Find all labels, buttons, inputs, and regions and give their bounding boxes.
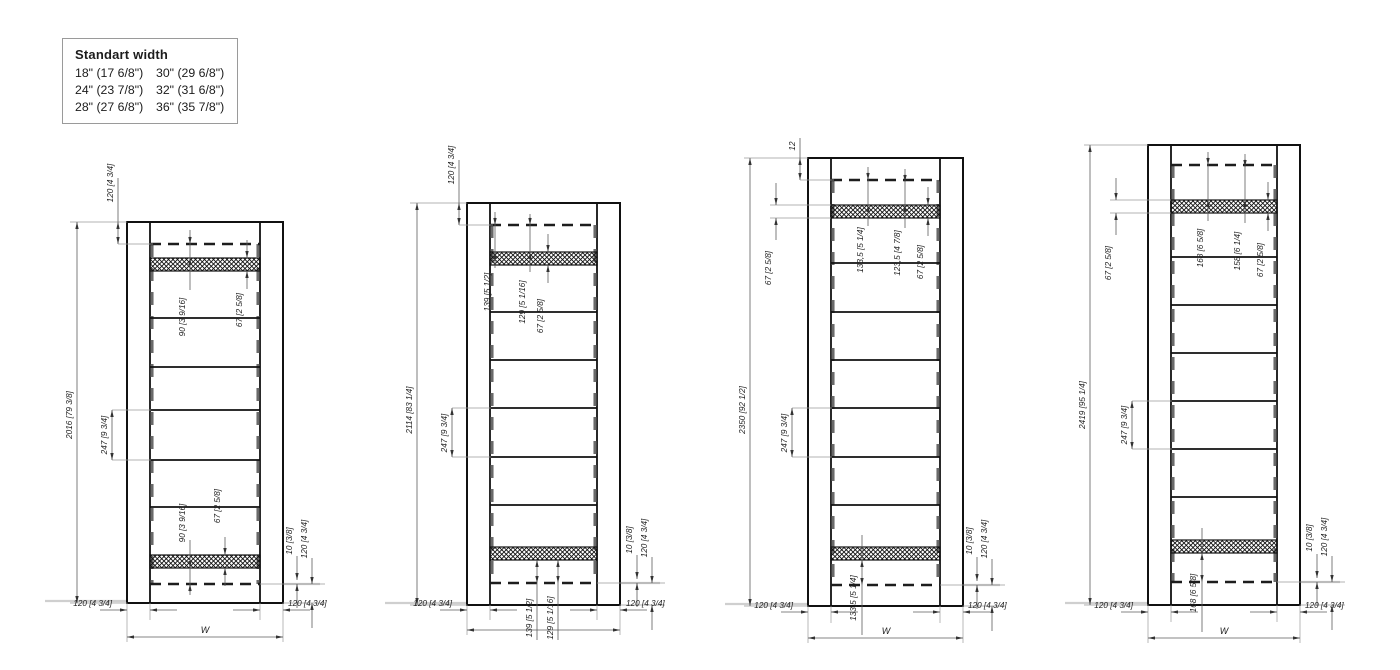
door-elevation-2: 2114 [83 1/4] 120 [4 3/4] 247 [9 3/4] 13… — [360, 120, 700, 670]
door4-slab — [1065, 145, 1340, 605]
door2-dim-bottom-left: 120 [4 3/4] — [413, 599, 452, 608]
door4-dim-right-10: 10 [3/8] — [1305, 524, 1314, 552]
door1-dim-bottom-left: 120 [4 3/4] — [73, 599, 112, 608]
door-elevation-1: 2016 [79 3/8] 120 [4 3/4] 247 [9 3/4] 90… — [20, 120, 360, 670]
legend-item: 30" (29 6/8") — [156, 66, 227, 80]
door2-dim-shelf-gap: 247 [9 3/4] — [440, 413, 449, 453]
door3-louver-top — [831, 205, 940, 218]
door4-dim-height: 2419 [95 1/4] — [1078, 380, 1087, 430]
door2-dim-inner-top-b: 129 [5 1/16] — [518, 280, 527, 324]
legend-item: 24" (23 7/8") — [75, 83, 146, 97]
door3-dim-right-120: 120 [4 3/4] — [980, 519, 989, 558]
door2-louver-bottom — [490, 547, 597, 560]
door2-dim-inner-bottom-b: 129 [5 1/16] — [546, 596, 555, 640]
door4-louver-top — [1171, 200, 1277, 213]
door1-dim-right-10: 10 [3/8] — [285, 527, 294, 555]
door3-slab — [725, 158, 1000, 606]
door3-dim-shelf-gap: 247 [9 3/4] — [780, 413, 789, 453]
door1-dim-top-gap: 120 [4 3/4] — [106, 163, 115, 202]
door2-louver-top — [490, 252, 597, 265]
door-elevation-4: 2419 [95 1/4] 67 [2 5/8] 247 [9 3/4] 168… — [1040, 120, 1380, 670]
door4-dim-shelf-gap: 247 [9 3/4] — [1120, 405, 1129, 445]
door3-dim-inner-top-b: 123,5 [4 7/8] — [893, 230, 902, 276]
door2-dim-right-120: 120 [4 3/4] — [640, 518, 649, 557]
door2-dim-right-10: 10 [3/8] — [625, 526, 634, 554]
door1-dim-inner-bottom-a: 90 [3 9/16] — [178, 503, 187, 542]
legend-item: 28" (27 6/8") — [75, 100, 146, 114]
door1-dim-height: 2016 [79 3/8] — [65, 390, 74, 440]
legend-item: 18" (17 6/8") — [75, 66, 146, 80]
door3-dim-inner-bottom-a: 133,5 [5 1/4] — [849, 575, 858, 621]
door3-dim-height: 2350 [92 1/2] — [738, 385, 747, 435]
door3-dim-inner-top-a: 133,5 [5 1/4] — [856, 227, 865, 273]
legend-grid: 18" (17 6/8") 30" (29 6/8") 24" (23 7/8"… — [75, 66, 227, 114]
door1-louver-bottom — [150, 555, 260, 568]
door1-dim-bottom-right: 120 [4 3/4] — [288, 599, 327, 608]
door2-dim-bottom-right: 120 [4 3/4] — [626, 599, 665, 608]
door3-dim-left-67: 67 [2 5/8] — [764, 250, 773, 285]
door3-dim-top-gap: 12 — [788, 141, 797, 151]
door-elevation-3: 2350 [92 1/2] 12 67 [2 5/8] 247 [9 3/4] … — [700, 120, 1040, 670]
door4-dim-inner-top-b: 158 [6 1/4] — [1233, 231, 1242, 270]
door2-slab — [385, 203, 660, 605]
door4-dim-inner-top-a: 168 [6 5/8] — [1196, 228, 1205, 267]
door3-dim-inner-top-c: 67 [2 5/8] — [916, 244, 925, 279]
door3-dim-right-10: 10 [3/8] — [965, 527, 974, 555]
door1-dim-inner-top-a: 90 [3 9/16] — [178, 297, 187, 336]
door3-dim-width: W — [882, 626, 892, 636]
door3-louver-bottom — [831, 547, 940, 560]
door4-dim-bottom-left: 120 [4 3/4] — [1094, 601, 1133, 610]
door1-dim-shelf-gap: 247 [9 3/4] — [100, 415, 109, 455]
legend-item: 36" (35 7/8") — [156, 100, 227, 114]
door2-dim-inner-bottom-a: 139 [5 1/2] — [525, 598, 534, 637]
door4-dim-bottom-right: 120 [4 3/4] — [1305, 601, 1344, 610]
door4-dim-right-120: 120 [4 3/4] — [1320, 517, 1329, 556]
standard-width-legend: Standart width 18" (17 6/8") 30" (29 6/8… — [62, 38, 238, 124]
door1-dim-inner-top-c: 67 [2 5/8] — [235, 292, 244, 327]
door4-louver-bottom — [1171, 540, 1277, 553]
door4-dim-inner-top-c: 67 [2 5/8] — [1256, 242, 1265, 277]
door4-dim-width: W — [1220, 626, 1230, 636]
door3-dim-bottom-right: 120 [4 3/4] — [968, 601, 1007, 610]
door4-dim-left-67: 67 [2 5/8] — [1104, 245, 1113, 280]
door1-slab — [45, 222, 320, 603]
door1-dim-right-120: 120 [4 3/4] — [300, 519, 309, 558]
door2-dim-inner-top-a: 139 [5 1/2] — [483, 272, 492, 311]
door3-dim-bottom-left: 120 [4 3/4] — [754, 601, 793, 610]
legend-title: Standart width — [75, 47, 227, 62]
door2-dim-top-gap: 120 [4 3/4] — [447, 145, 456, 184]
legend-item: 32" (31 6/8") — [156, 83, 227, 97]
door4-dim-inner-bottom-a: 168 [6 5/8] — [1189, 573, 1198, 612]
door1-dim-inner-bottom-c: 67 [2 5/8] — [213, 488, 222, 523]
door2-dim-inner-top-c: 67 [2 5/8] — [536, 298, 545, 333]
door1-louver-top — [150, 258, 260, 271]
door2-dim-height: 2114 [83 1/4] — [405, 386, 414, 435]
door1-dim-width: W — [201, 625, 211, 635]
